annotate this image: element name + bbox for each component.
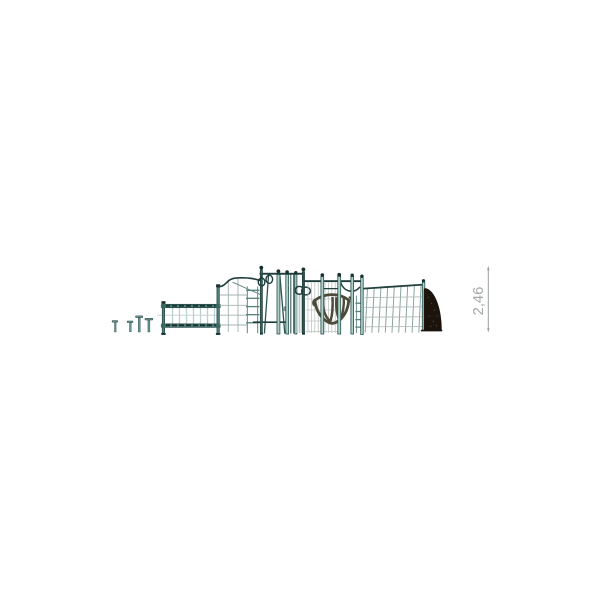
svg-text:2,46: 2,46 — [471, 287, 487, 316]
